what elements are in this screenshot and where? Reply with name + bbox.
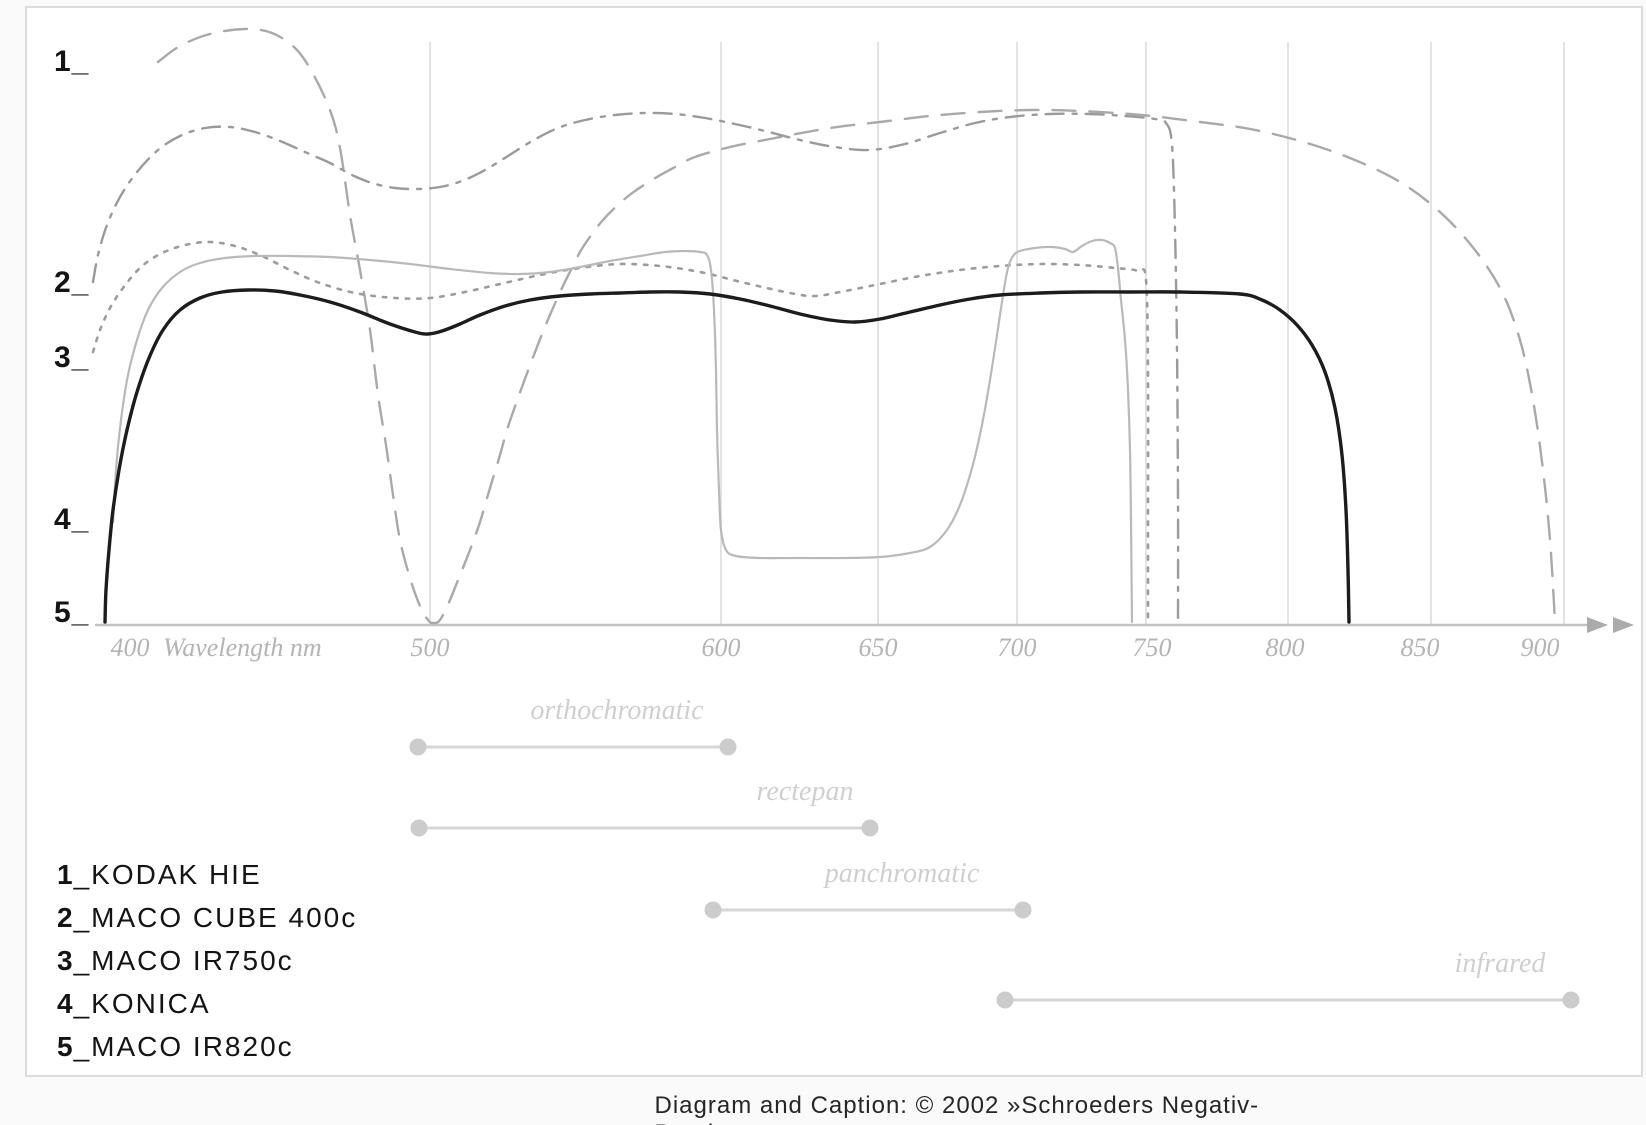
legend-item-number: 3 [57, 945, 74, 976]
axis-arrow-icon [1587, 617, 1608, 633]
y-curve-number-label: 4_ [54, 503, 89, 537]
copyright-caption: Diagram and Caption: © 2002 »Schroeders … [655, 1092, 1316, 1125]
legend-item-5: 5_MACO IR820c [57, 1029, 294, 1065]
x-axis-title: Wavelength nm [163, 633, 322, 663]
x-tick-label: 400 [111, 633, 150, 663]
x-tick-label: 650 [859, 633, 898, 663]
legend-item-2: 2_MACO CUBE 400c [57, 900, 357, 936]
spectral-range-dot [1015, 902, 1032, 919]
legend-item-name: _KONICA [74, 988, 211, 1019]
spectral-range-dot [1563, 992, 1580, 1009]
x-tick-label: 900 [1521, 633, 1560, 663]
y-curve-number-label: 5_ [54, 596, 89, 630]
legend-item-name: _KODAK HIE [74, 859, 262, 890]
spectral-class-label: panchromatic [825, 858, 980, 890]
x-tick-label: 750 [1133, 633, 1172, 663]
x-tick-label: 700 [998, 633, 1037, 663]
legend-item-number: 5 [57, 1031, 74, 1062]
legend-item-3: 3_MACO IR750c [57, 943, 294, 979]
spectral-range-dot [720, 739, 737, 756]
x-tick-label: 500 [411, 633, 450, 663]
curve-5-maco-ir820c [105, 290, 1349, 622]
spectral-range-dot [411, 820, 428, 837]
y-curve-number-label: 1_ [54, 45, 89, 79]
x-tick-label: 800 [1266, 633, 1305, 663]
legend-item-name: _MACO IR820c [74, 1031, 294, 1062]
legend-item-4: 4_KONICA [57, 986, 211, 1022]
x-tick-label: 850 [1401, 633, 1440, 663]
y-curve-number-label: 3_ [54, 341, 89, 375]
spectral-class-label: orthochromatic [530, 695, 703, 727]
y-curve-number-label: 2_ [54, 266, 89, 300]
spectral-range-dot [705, 902, 722, 919]
legend-item-number: 2 [57, 902, 74, 933]
legend-item-number: 1 [57, 859, 74, 890]
figure-stage: Diagram and Caption: © 2002 »Schroeders … [0, 0, 1646, 1125]
curve-3-maco-ir750c [93, 242, 1148, 622]
spectral-class-label: infrared [1455, 948, 1546, 980]
axis-arrow-icon [1613, 617, 1634, 633]
legend-item-number: 4 [57, 988, 74, 1019]
legend-item-name: _MACO CUBE 400c [74, 902, 358, 933]
spectral-range-dot [862, 820, 879, 837]
spectral-class-label: rectepan [757, 776, 854, 808]
x-tick-label: 600 [702, 633, 741, 663]
spectral-range-dot [410, 739, 427, 756]
spectral-range-dot [997, 992, 1014, 1009]
legend-item-name: _MACO IR750c [74, 945, 294, 976]
legend-item-1: 1_KODAK HIE [57, 857, 262, 893]
